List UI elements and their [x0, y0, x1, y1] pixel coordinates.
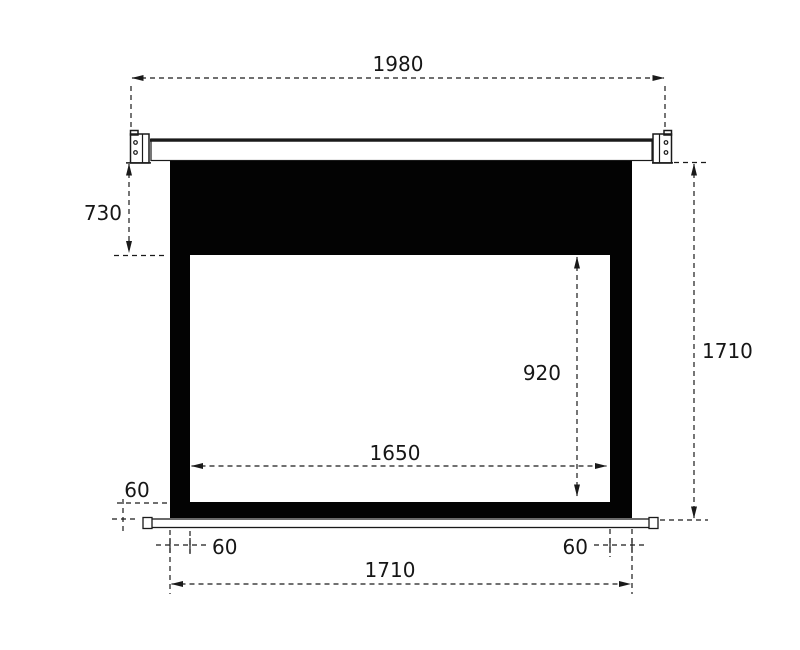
- dim-label-case-width: 1980: [373, 52, 424, 76]
- bracket-screw-hole: [134, 141, 138, 145]
- screen-dimension-diagram: 1980 730 1710 920 1650 60 60: [0, 0, 800, 650]
- dim-label-viewing-height: 920: [523, 361, 561, 385]
- dim-total-height: 1710: [660, 163, 753, 521]
- mounting-bracket-right: [652, 131, 673, 164]
- dim-label-left-border-width: 60: [212, 535, 237, 559]
- slat-end-cap-left: [143, 518, 152, 529]
- bracket-plate: [131, 134, 150, 163]
- dim-top-drop: 730: [84, 164, 168, 256]
- bracket-plate: [653, 134, 672, 163]
- dim-left-border-width: 60: [156, 531, 237, 559]
- bracket-screw-hole: [664, 151, 668, 155]
- housing-case: [150, 139, 653, 161]
- bracket-screw-hole: [134, 151, 138, 155]
- dim-label-viewing-width: 1650: [370, 441, 421, 465]
- dim-right-border-width: 60: [563, 529, 646, 559]
- bracket-screw-hole: [664, 141, 668, 145]
- dim-label-bottom-border-height: 60: [124, 478, 149, 502]
- dim-case-width: 1980: [131, 52, 665, 130]
- case-bar: [151, 139, 652, 161]
- slat-end-cap-right: [649, 518, 658, 529]
- slat-bar: [150, 519, 650, 528]
- bottom-slat: [143, 518, 658, 529]
- dim-label-total-height: 1710: [702, 339, 753, 363]
- mounting-bracket-left: [126, 131, 151, 164]
- dim-label-top-drop: 730: [84, 201, 122, 225]
- dim-label-right-border-width: 60: [563, 535, 588, 559]
- dim-label-fabric-width: 1710: [365, 558, 416, 582]
- diagram-canvas: 1980 730 1710 920 1650 60 60: [0, 0, 800, 650]
